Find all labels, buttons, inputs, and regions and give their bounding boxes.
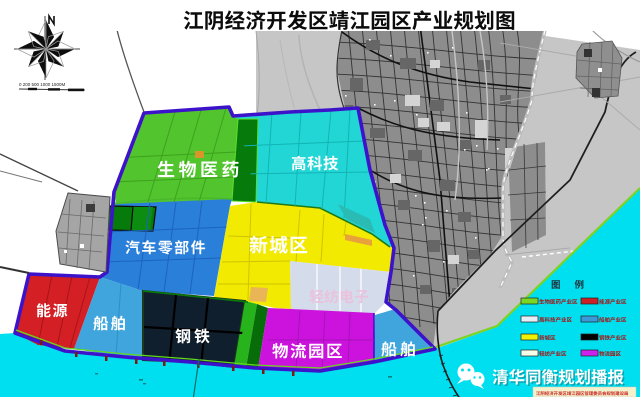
svg-text:0 200 500 1000: 0 200 500 1000 1500M xyxy=(19,82,66,87)
